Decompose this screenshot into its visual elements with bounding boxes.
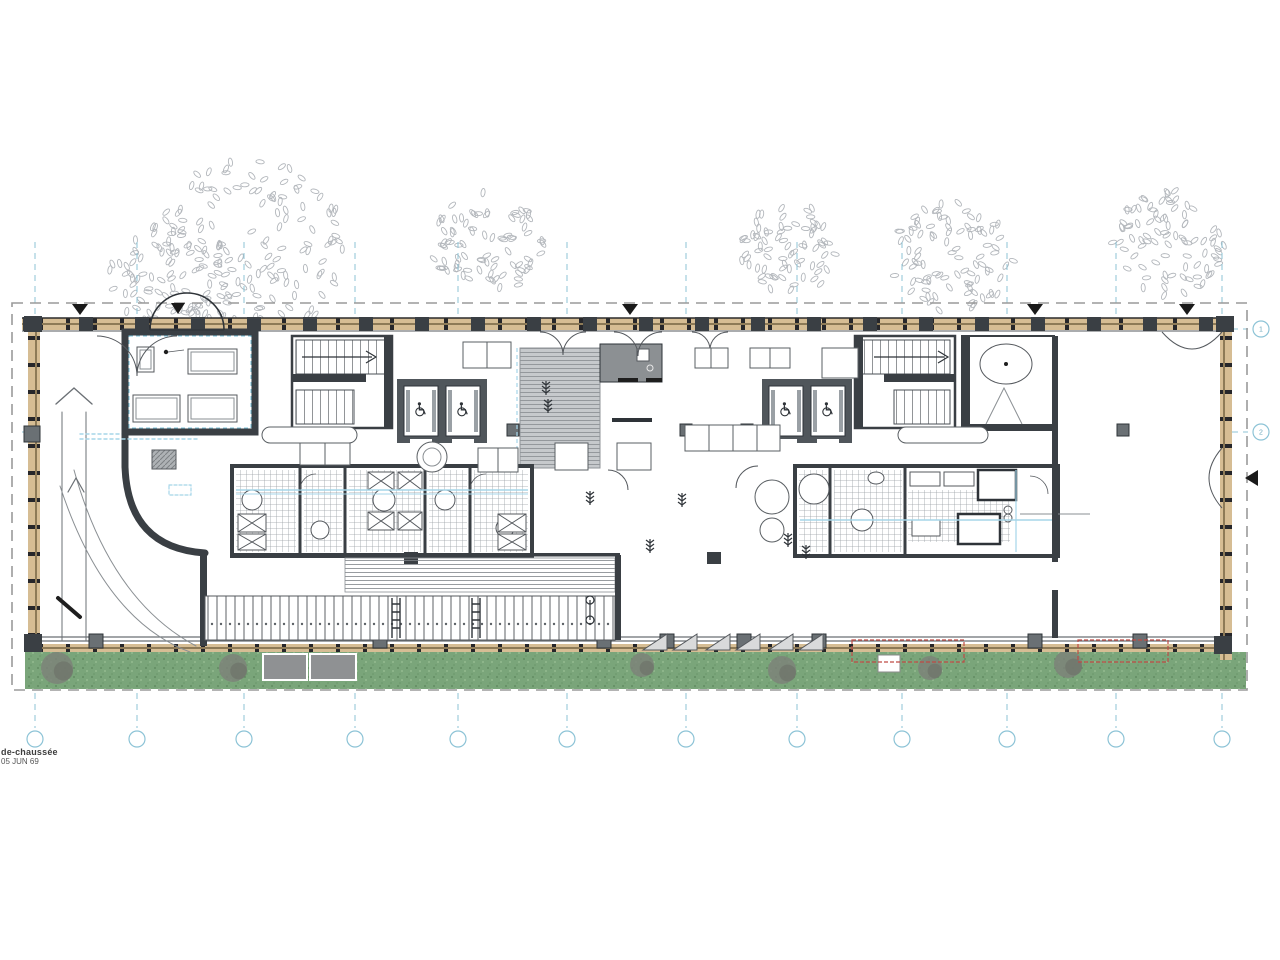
section-arrow-icon	[622, 304, 638, 315]
column	[89, 634, 103, 648]
table	[685, 425, 780, 451]
section-arrow-icon	[1027, 304, 1043, 315]
facade-pier	[919, 317, 933, 331]
caption-date: 05 JUN 69	[1, 757, 58, 767]
facade-pier	[1087, 317, 1101, 331]
facade-pier	[303, 317, 317, 331]
grid-bubble-label: 1	[1259, 327, 1263, 334]
table	[463, 342, 511, 368]
column	[1133, 634, 1147, 648]
facade-pier	[471, 317, 485, 331]
grid-bubble	[347, 731, 363, 747]
sanitary-block-west	[232, 466, 532, 564]
facade-pier	[415, 317, 429, 331]
grid-bubble	[236, 731, 252, 747]
facade-west	[28, 322, 40, 646]
facade-pier	[23, 317, 37, 331]
column	[1028, 634, 1042, 648]
facade-east	[1220, 322, 1232, 660]
floor-plan-sheet: 12	[0, 0, 1280, 960]
floor-plan-drawing: 12	[0, 0, 1280, 960]
facade-pier	[359, 317, 373, 331]
stair-west	[292, 336, 392, 428]
facade-pier	[695, 317, 709, 331]
planter	[417, 442, 447, 472]
facade-pier	[639, 317, 653, 331]
facade-south	[42, 644, 1225, 652]
facade-pier	[1143, 317, 1157, 331]
planter	[755, 480, 789, 514]
ramp-grating	[345, 558, 615, 592]
column	[1117, 424, 1129, 436]
grid-bubble	[999, 731, 1015, 747]
facade-pier	[807, 317, 821, 331]
facade-pier	[527, 317, 541, 331]
planter	[760, 518, 784, 542]
section-arrow-icon	[171, 303, 185, 314]
grid-bubble	[1214, 731, 1230, 747]
grid-bubble-label: 2	[1259, 430, 1263, 437]
paver-slab	[310, 654, 356, 680]
bench	[898, 427, 988, 443]
tree-canopies	[107, 158, 1227, 343]
paver-slab	[263, 654, 307, 680]
table	[478, 448, 518, 472]
table	[617, 443, 651, 470]
stair-east	[855, 336, 955, 428]
facade-pier	[79, 317, 93, 331]
grid-bubble	[27, 731, 43, 747]
grid-bubble	[1108, 731, 1124, 747]
grid-bubble	[450, 731, 466, 747]
drawing-caption: de-chaussée 05 JUN 69	[1, 747, 58, 767]
facade-pier	[975, 317, 989, 331]
facade-pier	[751, 317, 765, 331]
table	[555, 443, 588, 470]
caption-level-name: de-chaussée	[1, 747, 58, 757]
section-arrow-icon	[72, 304, 88, 315]
bike-racks	[205, 596, 615, 640]
grid-bubble	[894, 731, 910, 747]
elevator-bank-west	[397, 379, 487, 445]
grid-bubble	[789, 731, 805, 747]
grid-bubble	[678, 731, 694, 747]
facade-pier	[1031, 317, 1045, 331]
equipment-pad	[152, 450, 176, 469]
table	[300, 443, 350, 465]
facade-pier	[583, 317, 597, 331]
facade-pier	[863, 317, 877, 331]
table	[822, 348, 858, 378]
section-arrow-icon	[1179, 304, 1195, 315]
appliance	[978, 470, 1016, 500]
table	[695, 348, 728, 368]
grid-bubble	[129, 731, 145, 747]
table	[750, 348, 790, 368]
bench	[262, 427, 357, 443]
appliance	[958, 514, 1000, 544]
grid-bubble	[559, 731, 575, 747]
facade-pier	[1199, 317, 1213, 331]
partition-wall	[1052, 336, 1058, 562]
drain-pit	[878, 655, 900, 672]
reception-desk	[600, 344, 662, 382]
